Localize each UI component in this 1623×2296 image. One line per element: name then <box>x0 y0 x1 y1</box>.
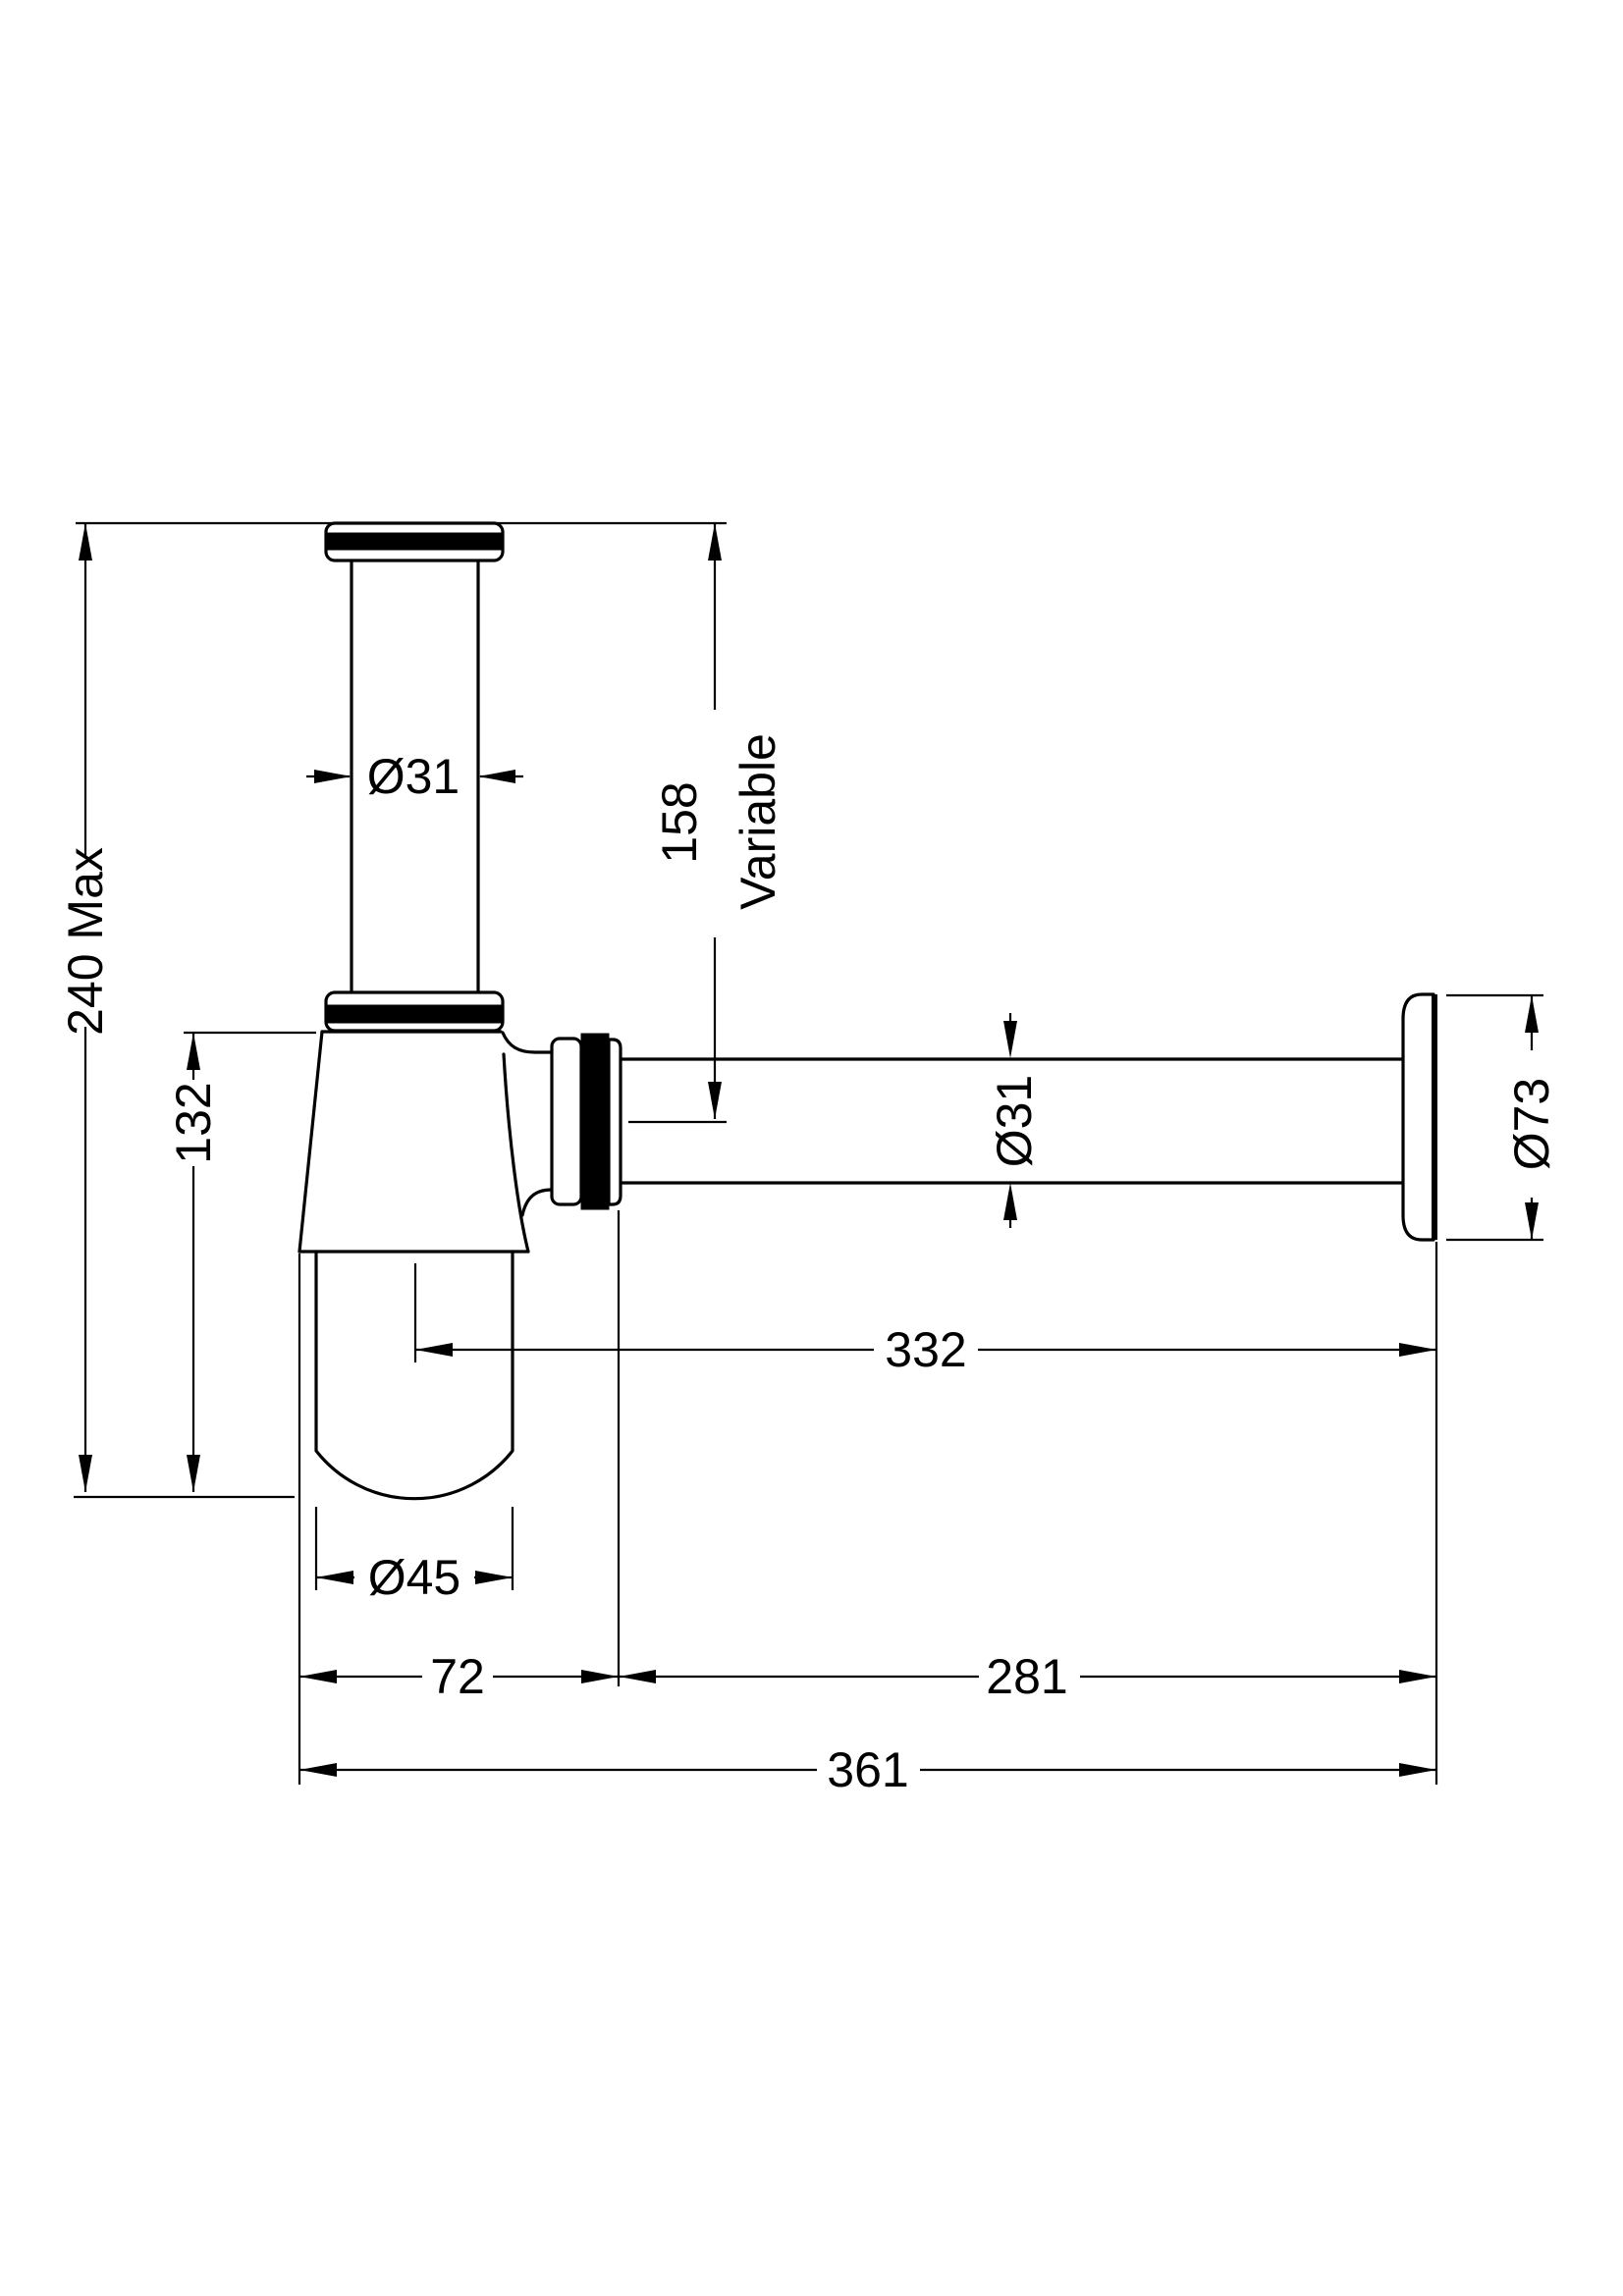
body-nut-seal-band <box>327 1005 502 1023</box>
dim-label-outlet-diameter: Ø31 <box>987 1075 1042 1168</box>
drawing-sheet: 240 Max 132 Ø31 158 Variable Ø31 <box>0 0 1623 2296</box>
dim-label-variable: Variable <box>730 733 785 910</box>
dim-label-361: 361 <box>827 1742 908 1797</box>
dim-label-332: 332 <box>885 1322 966 1377</box>
dim-cup-diameter: Ø45 <box>316 1507 513 1605</box>
outlet-seal-band <box>581 1034 609 1209</box>
dim-centre-to-wall: 332 <box>415 1263 1436 1377</box>
dim-label-132: 132 <box>166 1082 221 1163</box>
trap-body <box>299 1032 552 1252</box>
dim-inlet-length: 158 Variable <box>628 523 785 1122</box>
dim-body-height: 132 <box>166 1033 316 1492</box>
dim-label-281: 281 <box>986 1649 1067 1704</box>
dim-trap-width: 72 <box>299 1649 619 1704</box>
dim-label-158: 158 <box>652 781 707 863</box>
dim-overall-width: 361 <box>299 1742 1436 1797</box>
dim-inlet-diameter: Ø31 <box>306 749 523 804</box>
outlet-neck-bottom <box>522 1190 552 1215</box>
dim-label-240-max: 240 Max <box>58 847 113 1036</box>
wall-flange <box>1403 994 1434 1240</box>
dim-outlet-run: 281 <box>619 1649 1436 1704</box>
dim-label-cup-diameter: Ø45 <box>368 1550 461 1605</box>
dim-flange-diameter: Ø73 <box>1446 995 1559 1240</box>
dim-label-flange-diameter: Ø73 <box>1504 1078 1559 1171</box>
outlet-neck-top <box>503 1033 552 1052</box>
bottle-trap-outline <box>299 523 1434 1499</box>
dim-outlet-diameter: Ø31 <box>987 1013 1042 1228</box>
dim-overall-height: 240 Max <box>58 523 295 1497</box>
top-nut-seal-band <box>327 533 502 550</box>
dim-label-inlet-diameter: Ø31 <box>367 749 460 804</box>
dim-label-72: 72 <box>430 1649 485 1704</box>
body-nut <box>326 992 503 1031</box>
outlet-nut <box>552 1034 621 1209</box>
top-nut <box>326 523 503 561</box>
bottle-trap-drawing: 240 Max 132 Ø31 158 Variable Ø31 <box>0 0 1623 2296</box>
